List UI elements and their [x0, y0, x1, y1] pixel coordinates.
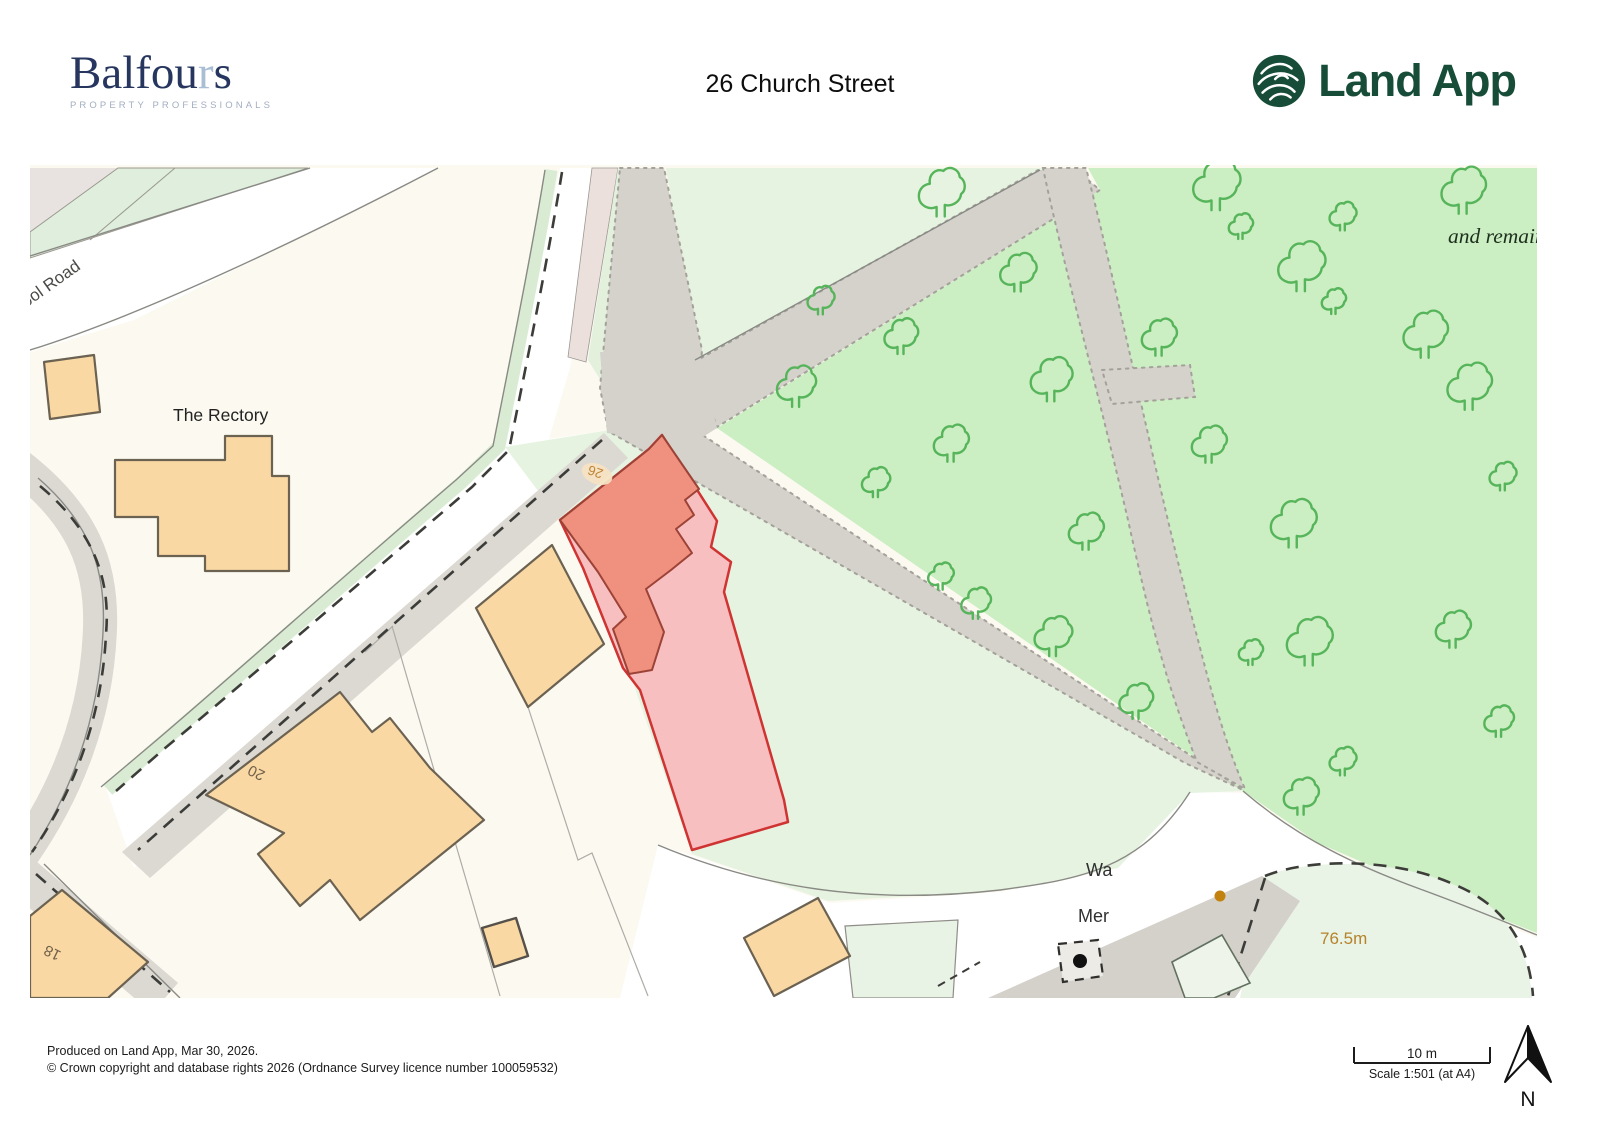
scale-distance-label: 10 m — [1407, 1046, 1437, 1061]
scale-ratio-label: Scale 1:501 (at A4) — [1369, 1067, 1475, 1081]
green-parcel-bottom — [845, 920, 958, 998]
rectory-label: The Rectory — [173, 405, 269, 425]
landapp-logo: Land App — [1250, 52, 1516, 110]
spot-height-label: 76.5m — [1320, 929, 1367, 948]
footer-produced: Produced on Land App, Mar 30, 2026. — [47, 1044, 258, 1058]
map-export-page: Balfours PROPERTY PROFESSIONALS 26 Churc… — [0, 0, 1600, 1131]
landapp-wordmark: Land App — [1318, 55, 1516, 107]
footer-copyright: © Crown copyright and database rights 20… — [47, 1061, 558, 1075]
balfours-subtitle: PROPERTY PROFESSIONALS — [70, 100, 277, 111]
wa-label: Wa — [1086, 860, 1113, 880]
north-label: N — [1520, 1088, 1535, 1111]
map-furniture: 10 m Scale 1:501 (at A4) N — [1340, 1018, 1570, 1128]
building-small-topleft — [44, 355, 100, 419]
mer-label: Mer — [1078, 906, 1109, 926]
landapp-contour-icon — [1250, 52, 1308, 110]
map-canvas: ool Road The Rectory 20 18 26 Wa Mer 76.… — [30, 165, 1537, 998]
north-arrow-icon — [1505, 1026, 1551, 1082]
monument-marker — [1058, 940, 1103, 982]
antiquity-label: and remain — [1448, 224, 1537, 248]
spot-height-dot — [1215, 891, 1226, 902]
